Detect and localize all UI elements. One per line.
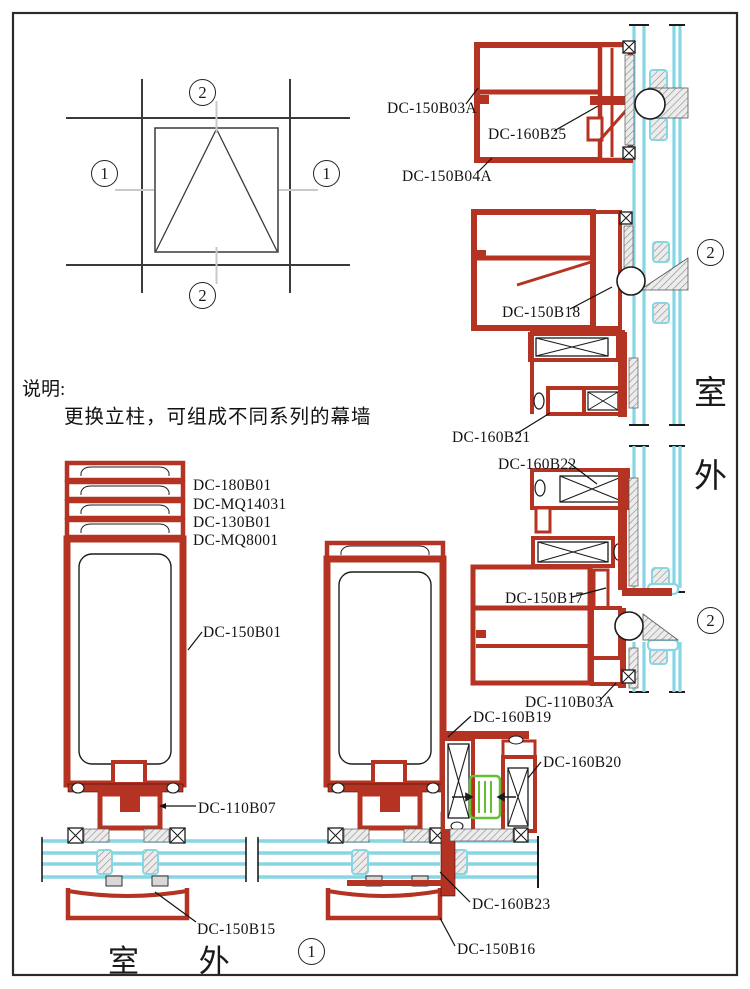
angle-23-horizontal	[347, 880, 455, 886]
exterior-label-vertical-char1: 室	[694, 366, 727, 414]
part-label-dc-150b04a: DC-150B04A	[402, 168, 492, 186]
part-label-dc-mq8001: DC-MQ8001	[193, 532, 278, 550]
section-bubble-2b: 2	[697, 607, 724, 634]
detail-bottom-mullion-section	[473, 608, 678, 688]
glazing-spacers	[650, 70, 669, 664]
anchor-bolt-circle	[617, 267, 645, 295]
grid-bubble-bottom: 2	[189, 282, 216, 309]
notes-heading: 说明:	[22, 374, 65, 401]
part-label-dc-150b17: DC-150B17	[505, 590, 583, 608]
part-label-dc-160b20: DC-160B20	[543, 754, 621, 772]
part-label-dc-160b21: DC-160B21	[452, 429, 530, 447]
notes-body: 更换立柱，可组成不同系列的幕墙	[64, 400, 372, 429]
drawing-sheet: 说明: 更换立柱，可组成不同系列的幕墙 2 1 1 2 2 2 1 DC-150…	[0, 0, 750, 989]
grid-bubble-top: 2	[189, 79, 216, 106]
part-label-dc-130b01: DC-130B01	[193, 514, 271, 532]
grid-bubble-right: 1	[313, 160, 340, 187]
section-bubble-2a: 2	[697, 239, 724, 266]
part-label-dc-160b19: DC-160B19	[473, 709, 551, 727]
grid-bubble-left: 1	[91, 160, 118, 187]
exterior-label-vertical-char2: 外	[694, 449, 727, 497]
key-plan-panel	[155, 128, 278, 252]
anchor-bolt-circle-2	[615, 612, 643, 640]
key-plan-opening-triangle	[156, 129, 277, 251]
section-bubble-1: 1	[298, 938, 325, 965]
part-label-dc-150b01: DC-150B01	[203, 624, 281, 642]
part-label-dc-110b07: DC-110B07	[198, 800, 276, 818]
detail-transom-21	[530, 332, 638, 417]
part-label-dc-150b16: DC-150B16	[457, 941, 535, 959]
backer-rod-circle	[635, 89, 665, 119]
part-label-dc-180b01: DC-180B01	[193, 477, 271, 495]
mullion-1-section	[67, 463, 187, 918]
part-label-dc-150b18: DC-150B18	[502, 304, 580, 322]
part-label-dc-150b03a: DC-150B03A	[387, 100, 477, 118]
exterior-label-bottom: 室 外	[108, 936, 256, 981]
glass-top-seal	[648, 640, 678, 650]
part-label-dc-160b25: DC-160B25	[488, 126, 566, 144]
cad-linework	[0, 0, 750, 989]
part-label-dc-160b22: DC-160B22	[498, 456, 576, 474]
part-label-dc-mq14031: DC-MQ14031	[193, 496, 286, 514]
part-label-dc-160b23: DC-160B23	[472, 896, 550, 914]
glass-break-symbol	[246, 837, 258, 882]
mullion-2-section	[327, 543, 445, 918]
